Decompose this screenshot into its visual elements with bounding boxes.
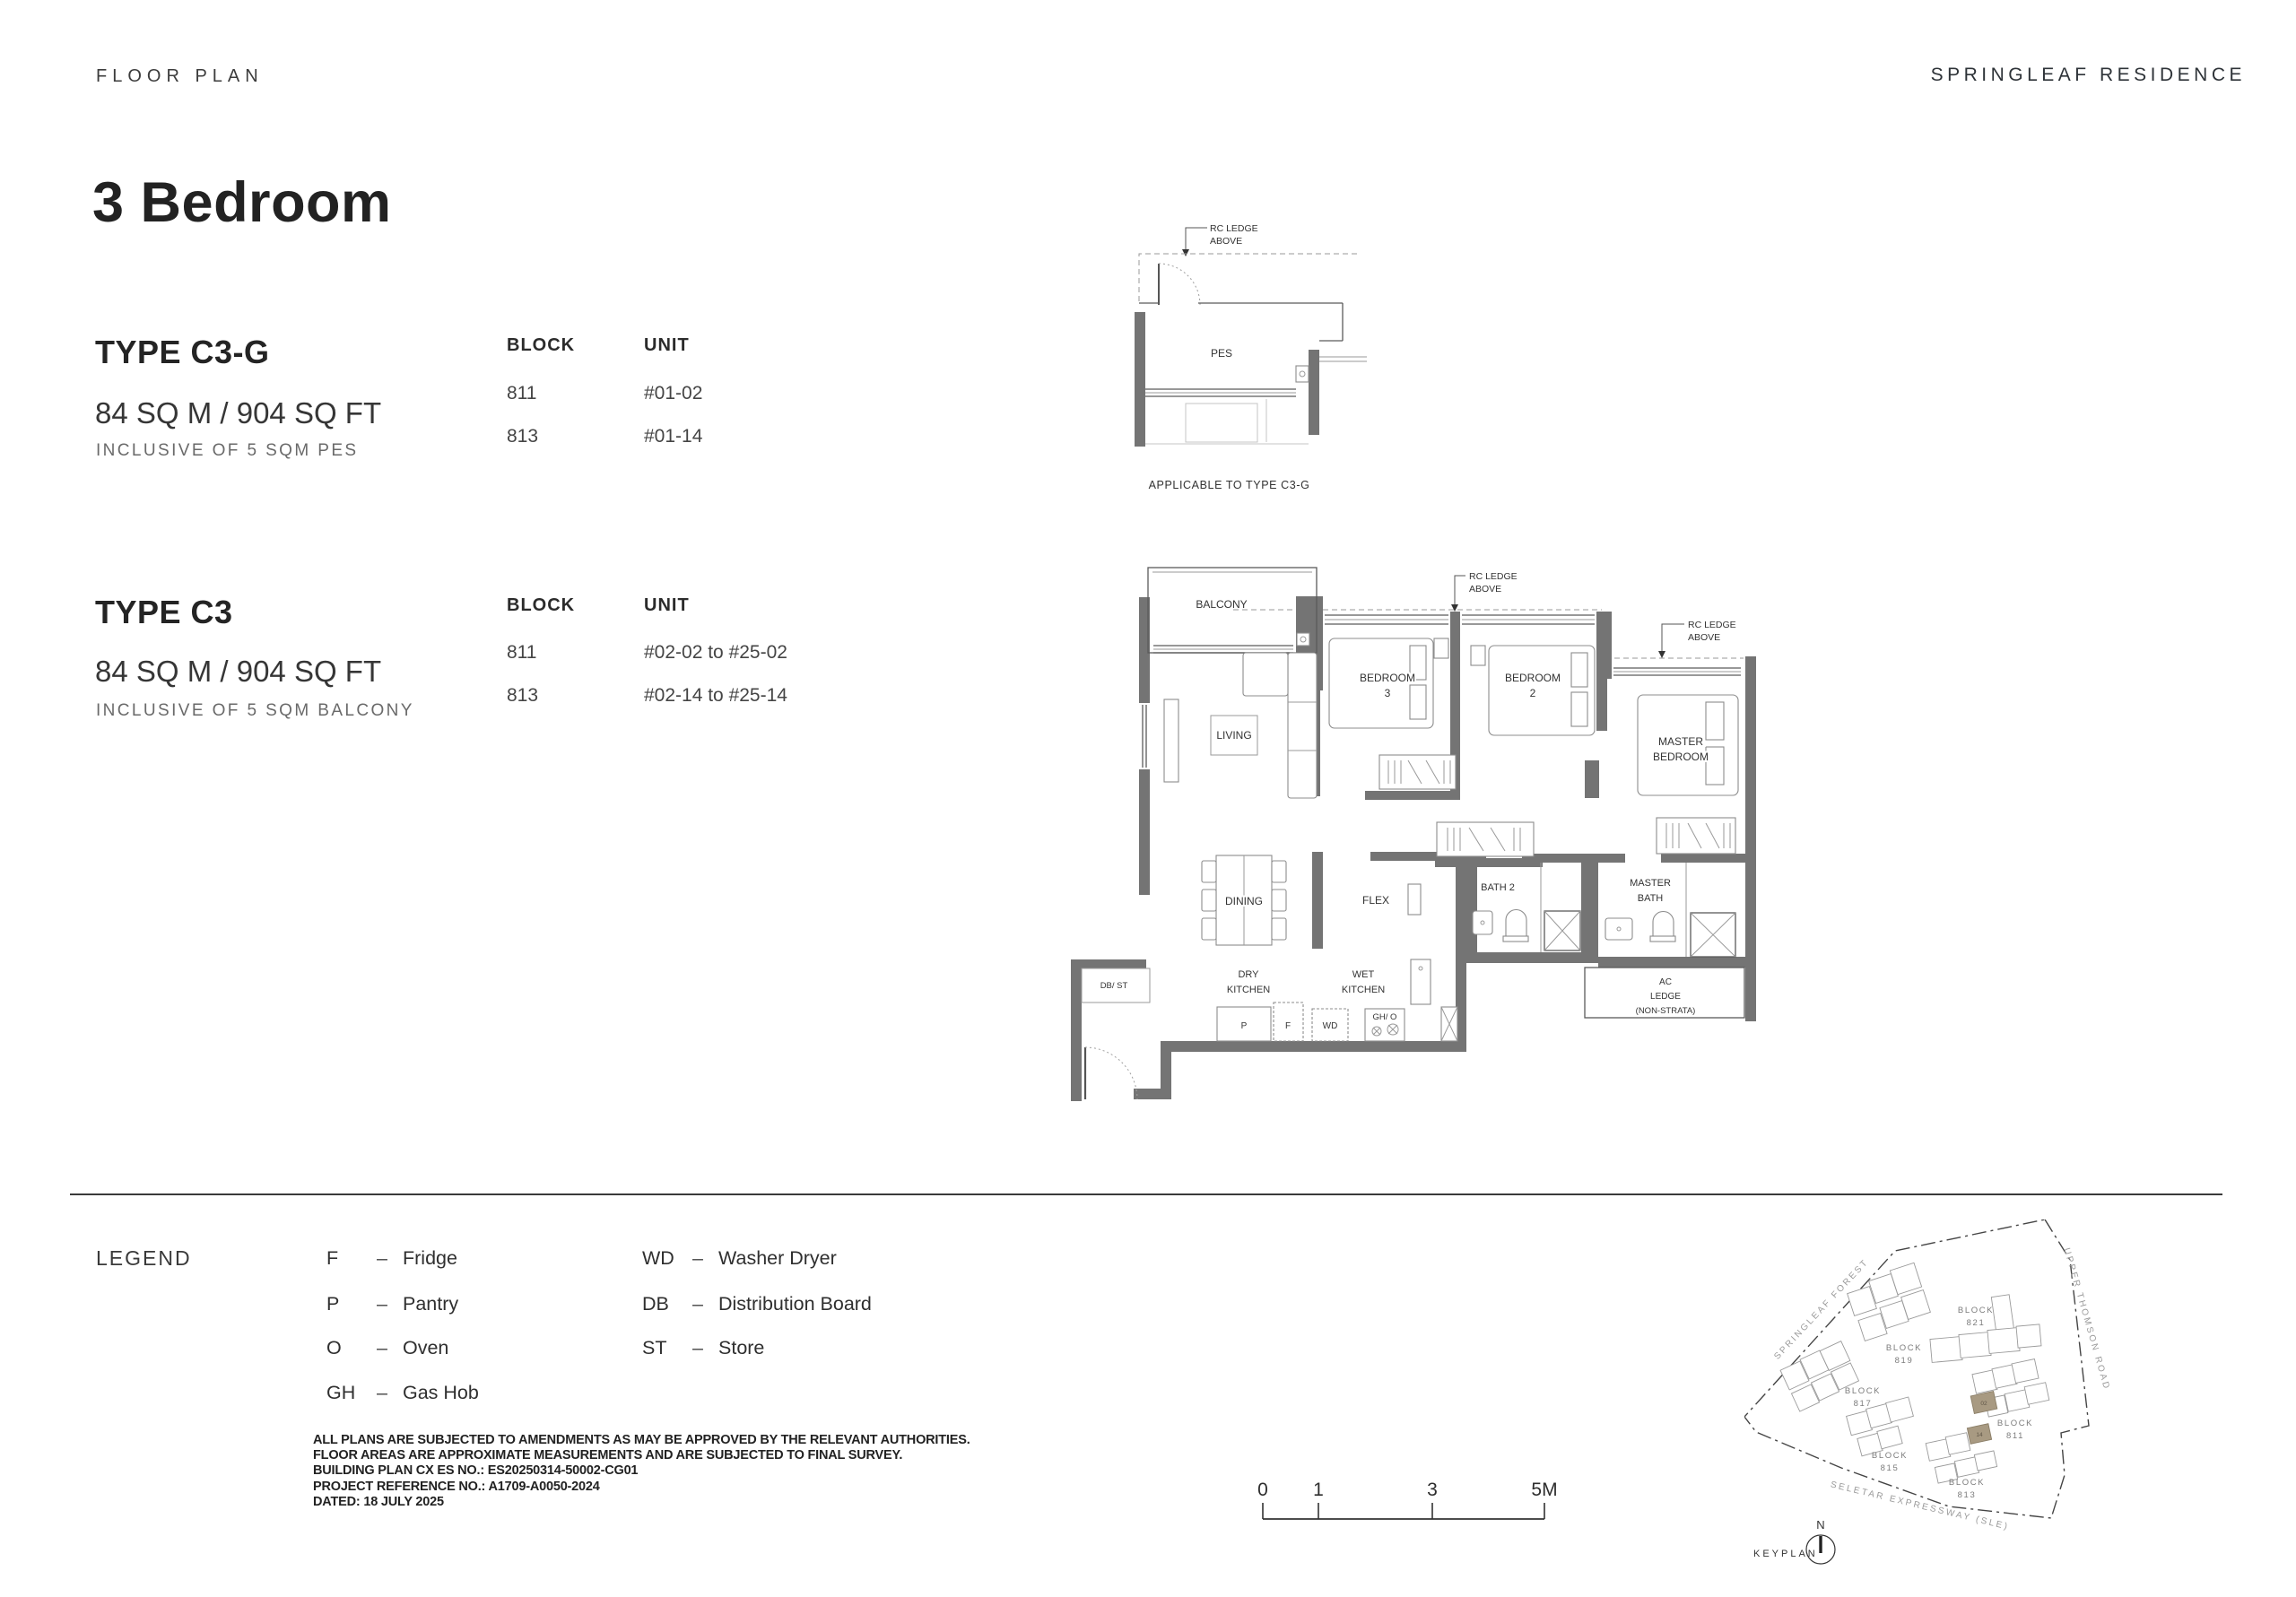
block-817-cluster: BLOCK 817 — [1780, 1341, 1881, 1411]
road-label: SELETAR EXPRESSWAY (SLE) — [1830, 1480, 2011, 1532]
svg-text:RC LEDGE: RC LEDGE — [1210, 223, 1258, 234]
bedroom2-label: BEDROOM — [1505, 672, 1561, 684]
block-value: 813 — [507, 426, 538, 447]
pantry-label: P — [1241, 1021, 1248, 1031]
svg-text:14: 14 — [1976, 1432, 1983, 1438]
unit-value: #02-14 to #25-14 — [644, 685, 787, 707]
bath2-fixtures — [1473, 863, 1580, 952]
svg-text:ABOVE: ABOVE — [1210, 236, 1242, 247]
svg-text:BLOCK: BLOCK — [1872, 1451, 1908, 1461]
svg-text:BLOCK: BLOCK — [1949, 1478, 1985, 1488]
master-bedroom-furniture — [1638, 695, 1738, 854]
disclaimer-line: FLOOR AREAS ARE APPROXIMATE MEASUREMENTS… — [313, 1448, 995, 1463]
block-column-header: BLOCK — [507, 595, 575, 616]
block-value: 811 — [507, 383, 536, 404]
bedroom3-wardrobe — [1379, 755, 1456, 789]
block-column-header: BLOCK — [507, 335, 575, 356]
svg-text:BEDROOM: BEDROOM — [1653, 751, 1709, 763]
svg-text:2: 2 — [1530, 687, 1536, 699]
svg-text:N: N — [1816, 1518, 1824, 1532]
road-label: UPPER THOMSON ROAD — [2061, 1247, 2111, 1392]
project-name: SPRINGLEAF RESIDENCE — [1931, 65, 2246, 86]
block-value: 813 — [507, 685, 538, 707]
section-divider — [70, 1193, 2222, 1195]
legend-item: O–Oven — [326, 1337, 685, 1364]
legend-item: P–Pantry — [326, 1293, 685, 1320]
master-wardrobe — [1657, 818, 1735, 854]
svg-text:BLOCK: BLOCK — [1886, 1343, 1922, 1353]
svg-text:LEDGE: LEDGE — [1650, 992, 1681, 1002]
svg-text:819: 819 — [1895, 1356, 1914, 1366]
svg-text:BLOCK: BLOCK — [1845, 1386, 1881, 1396]
master-bedroom-label: MASTER — [1658, 735, 1703, 748]
block-821-cluster: BLOCK 821 — [1930, 1295, 2041, 1363]
legend-item: WD–Washer Dryer — [642, 1247, 1001, 1274]
pes-door-icon — [1159, 264, 1200, 305]
pes-plan-caption: APPLICABLE TO TYPE C3-G — [1146, 479, 1312, 491]
unit-column-header: UNIT — [644, 335, 690, 356]
type-name: TYPE C3-G — [95, 334, 270, 371]
floor-plan-page: { "header": {"left": "FLOOR PLAN", "righ… — [0, 0, 2296, 1597]
svg-text:5M: 5M — [1531, 1480, 1557, 1500]
pes-plan-drawing: RC LEDGE ABOVE PES — [1132, 222, 1387, 482]
entry-door-icon — [1085, 1047, 1137, 1099]
disclaimer-line: DATED: 18 JULY 2025 — [313, 1495, 995, 1510]
db-st-label: DB/ ST — [1100, 981, 1128, 991]
type-area: 84 SQ M / 904 SQ FT — [95, 396, 381, 430]
svg-text:RC LEDGE: RC LEDGE — [1688, 620, 1736, 630]
svg-text:3: 3 — [1427, 1480, 1438, 1500]
svg-text:BATH: BATH — [1638, 893, 1664, 904]
legend-title: LEGEND — [96, 1246, 192, 1271]
bath2-label: BATH 2 — [1481, 882, 1515, 893]
rc-ledge-annotation-1: RC LEDGE ABOVE — [1233, 571, 1602, 612]
disclaimer: ALL PLANS ARE SUBJECTED TO AMENDMENTS AS… — [313, 1433, 995, 1510]
dry-kitchen-label: DRY — [1238, 969, 1259, 980]
keyplan-label: KEYPLAN — [1753, 1549, 1818, 1559]
svg-text:1: 1 — [1313, 1480, 1324, 1500]
pes-walls — [1135, 303, 1367, 447]
main-floor-plan-drawing: RC LEDGE ABOVE RC LEDGE ABOVE — [1067, 556, 1794, 1121]
page-title: 3 Bedroom — [92, 170, 392, 235]
svg-text:BLOCK: BLOCK — [1997, 1419, 2033, 1428]
master-bath-label: MASTER — [1630, 878, 1671, 889]
svg-text:KITCHEN: KITCHEN — [1342, 985, 1385, 995]
legend-item: DB–Distribution Board — [642, 1293, 1001, 1320]
scale-bar: 0 1 3 5M — [1238, 1462, 1614, 1533]
keyplan: SPRINGLEAF FOREST UPPER THOMSON ROAD SEL… — [1744, 1219, 2247, 1596]
svg-text:(NON-STRATA): (NON-STRATA) — [1636, 1006, 1696, 1016]
block-value: 811 — [507, 642, 536, 664]
svg-text:RC LEDGE: RC LEDGE — [1469, 571, 1518, 582]
svg-text:821: 821 — [1967, 1318, 1986, 1328]
type-name: TYPE C3 — [95, 594, 233, 631]
unit-value: #01-02 — [644, 383, 702, 404]
svg-text:KITCHEN: KITCHEN — [1227, 985, 1270, 995]
pes-room-label: PES — [1211, 347, 1232, 360]
washer-dryer-label: WD — [1323, 1021, 1338, 1031]
living-label: LIVING — [1216, 729, 1251, 742]
flex-label: FLEX — [1362, 894, 1389, 907]
type-inclusive-note: INCLUSIVE OF 5 SQM PES — [96, 441, 358, 461]
svg-text:ABOVE: ABOVE — [1469, 584, 1501, 595]
svg-text:811: 811 — [2006, 1431, 2024, 1441]
svg-text:817: 817 — [1854, 1399, 1873, 1409]
pes-fixture — [1296, 366, 1309, 382]
svg-text:BLOCK: BLOCK — [1958, 1306, 1994, 1315]
legend-item: ST–Store — [642, 1337, 1001, 1364]
svg-text:02: 02 — [1980, 1401, 1987, 1407]
pes-rc-ledge: RC LEDGE ABOVE — [1139, 223, 1358, 301]
unit-value: #01-14 — [644, 426, 702, 447]
document-type-label: FLOOR PLAN — [96, 66, 264, 87]
block-813-cluster: 14 BLOCK 813 — [1926, 1424, 1996, 1500]
gas-hob-oven-label: GH/ O — [1373, 1012, 1397, 1022]
pes-window — [1145, 389, 1296, 396]
svg-text:ABOVE: ABOVE — [1688, 632, 1720, 643]
dining-label: DINING — [1225, 895, 1263, 907]
block-819-cluster: BLOCK 819 — [1848, 1263, 1931, 1366]
disclaimer-line: PROJECT REFERENCE NO.: A1709-A0050-2024 — [313, 1480, 995, 1495]
bedroom3-label: BEDROOM — [1360, 672, 1415, 684]
svg-text:813: 813 — [1958, 1490, 1977, 1500]
living-furniture — [1164, 653, 1317, 798]
legend-item: GH–Gas Hob — [326, 1382, 685, 1409]
balcony-label: BALCONY — [1196, 598, 1247, 611]
master-bath-fixtures — [1605, 863, 1735, 957]
disclaimer-line: BUILDING PLAN CX ES NO.: ES20250314-5000… — [313, 1463, 995, 1479]
svg-text:0: 0 — [1257, 1480, 1268, 1500]
bedroom3-furniture — [1329, 638, 1456, 789]
wet-kitchen-label: WET — [1352, 969, 1375, 980]
type-inclusive-note: INCLUSIVE OF 5 SQM BALCONY — [96, 701, 414, 721]
unit-column-header: UNIT — [644, 595, 690, 616]
disclaimer-line: ALL PLANS ARE SUBJECTED TO AMENDMENTS AS… — [313, 1433, 995, 1448]
unit-value: #02-02 to #25-02 — [644, 642, 787, 664]
ac-ledge-label: AC — [1659, 977, 1672, 987]
svg-text:3: 3 — [1385, 687, 1391, 699]
legend-item: F–Fridge — [326, 1247, 685, 1274]
svg-text:815: 815 — [1881, 1463, 1900, 1473]
rc-ledge-annotation-2: RC LEDGE ABOVE — [1605, 620, 1744, 658]
pes-lower-context-lines — [1145, 399, 1309, 444]
flex-cabinet — [1408, 884, 1421, 915]
bedroom2-wardrobe — [1437, 822, 1534, 856]
fridge-label: F — [1285, 1021, 1291, 1031]
type-area: 84 SQ M / 904 SQ FT — [95, 655, 381, 689]
